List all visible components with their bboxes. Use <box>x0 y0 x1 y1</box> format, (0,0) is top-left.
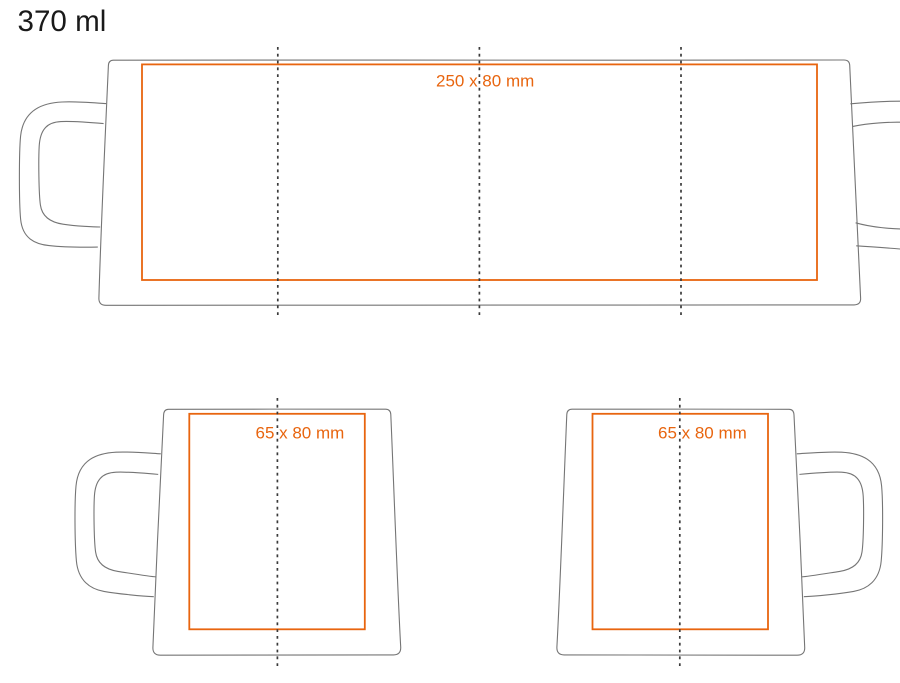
svg-text:65 x 80 mm: 65 x 80 mm <box>658 424 747 443</box>
svg-text:250 x 80 mm: 250 x 80 mm <box>436 72 534 91</box>
svg-text:65 x 80 mm: 65 x 80 mm <box>256 424 345 443</box>
svg-text:370 ml: 370 ml <box>18 5 107 38</box>
